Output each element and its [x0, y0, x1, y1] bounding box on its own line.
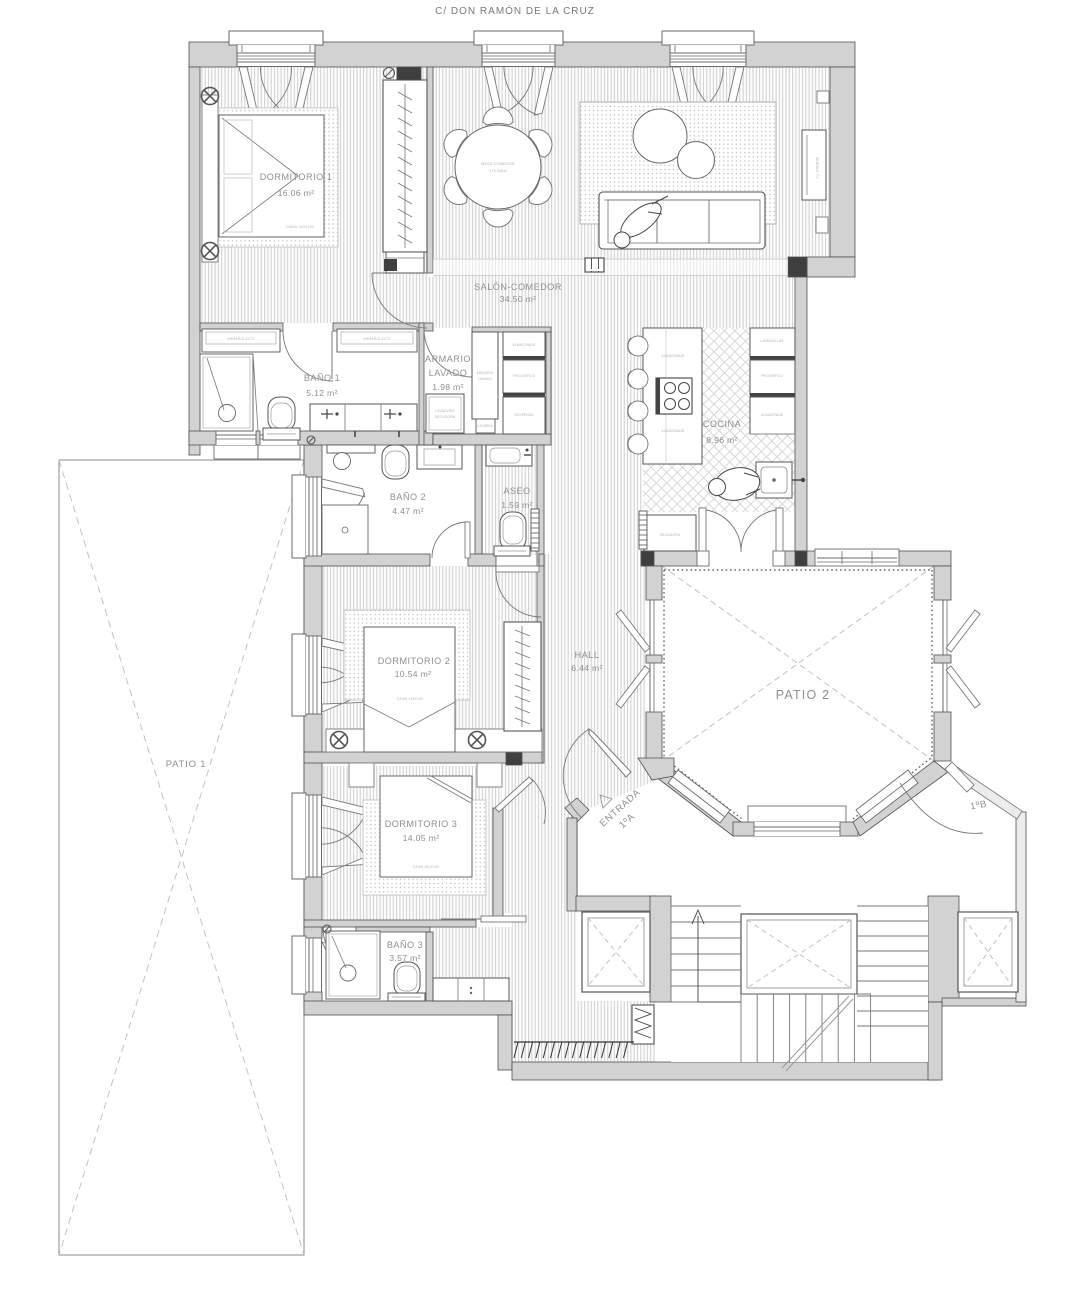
svg-text:C/ DON RAMÓN DE LA CRUZ: C/ DON RAMÓN DE LA CRUZ	[435, 4, 595, 17]
svg-text:FRIGORIFICO: FRIGORIFICO	[761, 374, 783, 378]
svg-text:BAÑO 2: BAÑO 2	[390, 492, 426, 502]
svg-text:1.98 m²: 1.98 m²	[432, 382, 464, 392]
svg-text:8.96 m²: 8.96 m²	[706, 435, 738, 445]
svg-text:ALMACENAJE: ALMACENAJE	[662, 354, 686, 358]
svg-text:4.47 m²: 4.47 m²	[392, 506, 424, 516]
svg-text:SECADORA: SECADORA	[435, 415, 456, 419]
svg-text:5.12 m²: 5.12 m²	[306, 388, 338, 398]
svg-text:CALDERA: CALDERA	[477, 424, 494, 428]
svg-text:ALMACENAJE: ALMACENAJE	[513, 343, 537, 347]
svg-text:14.05 m²: 14.05 m²	[403, 833, 440, 843]
svg-text:MESA COMEDOR: MESA COMEDOR	[481, 162, 515, 166]
svg-text:ARMARIO: ARMARIO	[425, 354, 471, 364]
svg-text:ASEO: ASEO	[503, 486, 530, 496]
svg-text:3.57 m²: 3.57 m²	[389, 953, 421, 963]
svg-text:10.54 m²: 10.54 m²	[395, 669, 432, 679]
svg-text:CAMA 150X190: CAMA 150X190	[413, 865, 440, 869]
svg-text:ARMARIO ALTO: ARMARIO ALTO	[227, 337, 255, 341]
svg-text:PATIO 2: PATIO 2	[776, 688, 830, 702]
svg-text:ALMACENAJE: ALMACENAJE	[662, 429, 686, 433]
svg-text:ARMARIO: ARMARIO	[476, 371, 493, 375]
svg-text:LAVADORA: LAVADORA	[435, 409, 455, 413]
svg-text:1.59 m²: 1.59 m²	[501, 500, 533, 510]
svg-text:CAMA 135X190: CAMA 135X190	[397, 697, 424, 701]
svg-text:DORMITORIO 2: DORMITORIO 2	[378, 656, 451, 666]
svg-text:BAÑO 1: BAÑO 1	[304, 373, 340, 383]
svg-text:16.06 m²: 16.06 m²	[278, 188, 315, 198]
svg-text:COCINA: COCINA	[703, 419, 742, 429]
svg-text:SALÓN-COMEDOR: SALÓN-COMEDOR	[474, 282, 562, 292]
svg-text:MUEBLE TV: MUEBLE TV	[815, 157, 819, 179]
svg-text:PATIO 1: PATIO 1	[166, 759, 207, 770]
svg-text:6.44 m²: 6.44 m²	[571, 663, 603, 673]
svg-text:DORMITORIO 1: DORMITORIO 1	[260, 172, 333, 182]
svg-text:LAVAVAJILLAS: LAVAVAJILLAS	[761, 339, 784, 343]
svg-text:HALL: HALL	[575, 650, 600, 660]
svg-text:34.50 m²: 34.50 m²	[500, 294, 537, 304]
svg-text:LAVADO: LAVADO	[429, 368, 468, 378]
svg-text:DORMITORIO 3: DORMITORIO 3	[385, 819, 458, 829]
svg-text:ARMARIO ALTO: ARMARIO ALTO	[363, 337, 391, 341]
svg-text:ALMACENAJE: ALMACENAJE	[761, 413, 783, 417]
svg-text:BAÑO 3: BAÑO 3	[387, 940, 423, 950]
svg-text:DESPENSA: DESPENSA	[515, 413, 534, 417]
svg-text:175 DIAM: 175 DIAM	[489, 169, 507, 173]
svg-text:FRIGORIFICO: FRIGORIFICO	[513, 374, 536, 378]
svg-text:CAMA 150X190: CAMA 150X190	[286, 225, 314, 229]
svg-text:SECADORA: SECADORA	[660, 533, 681, 537]
svg-text:LAVADO: LAVADO	[478, 377, 493, 381]
